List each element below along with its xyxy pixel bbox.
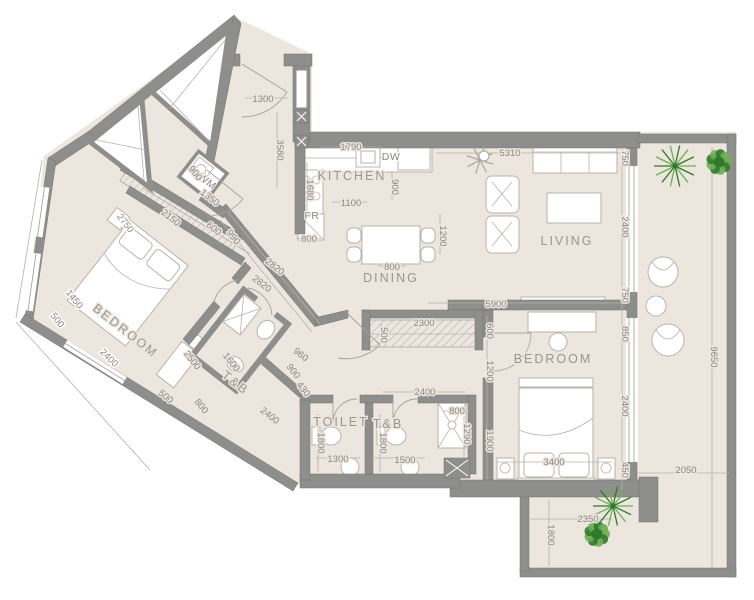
nightstand xyxy=(598,458,615,479)
dining-chair xyxy=(347,247,361,262)
dim-label: 2400 xyxy=(619,216,630,237)
desk-chair xyxy=(549,333,567,351)
dim-label: 3400 xyxy=(543,457,564,468)
dim-label: 800 xyxy=(301,234,317,245)
dim-label: 850 xyxy=(619,326,630,342)
dim-label: 1800 xyxy=(315,432,326,453)
wall-niche xyxy=(296,70,307,108)
dining-chair xyxy=(421,247,435,262)
floor-plan-canvas: KITCHENDININGLIVINGBEDROOMBEDROOMTOILETT… xyxy=(0,0,754,600)
dim-label: 2400 xyxy=(414,387,435,398)
duct-shaft xyxy=(295,110,308,123)
dim-label: 1790 xyxy=(340,142,361,153)
dining-table xyxy=(362,226,420,264)
dim-label: 450 xyxy=(619,462,630,478)
dim-label: 5900 xyxy=(485,299,506,310)
dining-chair xyxy=(347,228,361,243)
room-label: T&B xyxy=(373,417,403,431)
dim-label: 750 xyxy=(619,287,630,303)
room-label: BEDROOM xyxy=(514,352,593,366)
nightstand xyxy=(497,458,514,479)
dim-label: 500 xyxy=(378,327,389,343)
room-label: TOILET xyxy=(313,415,369,429)
dim-label: 900 xyxy=(389,179,400,195)
dim-label: 1200 xyxy=(437,225,448,246)
dim-label: 3580 xyxy=(274,139,285,160)
dim-label: 800 xyxy=(384,262,400,273)
duct-shaft xyxy=(295,135,308,148)
dim-label: 9650 xyxy=(708,346,719,367)
balcony-chair xyxy=(648,257,678,287)
room-label: LIVING xyxy=(541,234,594,248)
fixture-label: DW xyxy=(382,151,401,163)
dim-label: 1800 xyxy=(377,432,388,453)
dim-label: 750 xyxy=(619,150,630,166)
dim-label: 2350 xyxy=(577,514,598,525)
coffee-table xyxy=(547,193,601,223)
dim-label: 5310 xyxy=(499,148,520,159)
balcony-table xyxy=(646,296,666,316)
dim-label: 1290 xyxy=(461,423,472,444)
dining-chair xyxy=(421,228,435,243)
shower-drain xyxy=(448,421,456,429)
dim-label: 1680 xyxy=(304,179,315,200)
bed-bench xyxy=(519,378,593,387)
dim-label: 800 xyxy=(449,406,465,417)
floor-plan-page: KITCHENDININGLIVINGBEDROOMBEDROOMTOILETT… xyxy=(0,0,754,600)
dim-label: 1100 xyxy=(341,198,361,209)
desk xyxy=(528,312,596,332)
duct-shaft xyxy=(444,458,470,478)
dim-label: 2400 xyxy=(619,395,630,416)
dim-label: 600 xyxy=(484,323,495,339)
dim-label: 1300 xyxy=(252,94,273,105)
dishwasher xyxy=(398,146,430,170)
dim-label: 1500 xyxy=(394,455,415,466)
dim-label: 2300 xyxy=(413,318,434,329)
dim-label: 2050 xyxy=(675,465,696,476)
room-label: KITCHEN xyxy=(318,169,387,183)
room-label: DINING xyxy=(363,271,419,285)
dim-label: 1800 xyxy=(545,524,556,545)
dim-label: 1200 xyxy=(484,360,495,381)
dim-label: 1900 xyxy=(484,430,495,451)
fixture-label: FR xyxy=(305,210,320,222)
balcony-chair xyxy=(652,324,684,356)
dim-label: 1300 xyxy=(327,454,348,465)
